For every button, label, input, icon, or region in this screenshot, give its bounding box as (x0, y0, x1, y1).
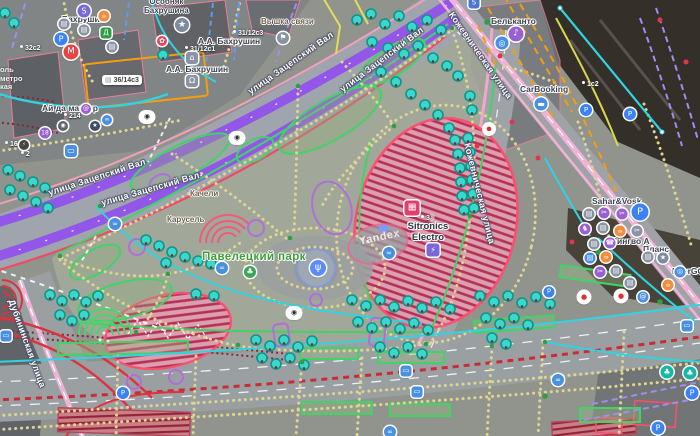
bell-icon[interactable]: Ω (186, 75, 198, 87)
briefcase-icon[interactable]: ▤ (584, 209, 595, 220)
briefcase-icon[interactable]: ▤ (598, 223, 609, 234)
camera-icon[interactable]: ◉ (58, 121, 68, 131)
bus-stop-icon[interactable]: ▭ (412, 387, 423, 398)
briefcase-icon[interactable]: ▤ (107, 42, 118, 53)
scissors-icon[interactable]: ✂ (595, 267, 606, 278)
parking-icon[interactable]: P (544, 287, 555, 298)
poi-icons-overlay: S ☕ ▤ ▤ Д P М ▤ ★ ✿ ⌂ Ω ⚑ ◉ ◉ ◉ ▭ 18 ◉ @… (0, 0, 700, 436)
bike-icon[interactable]: ∞ (552, 374, 564, 386)
stage-icon[interactable]: ▦ (405, 201, 420, 216)
park-tree-icon[interactable]: ♣ (661, 366, 674, 379)
target-icon[interactable]: ◎ (496, 37, 509, 50)
scissors-icon[interactable]: ✂ (617, 209, 628, 220)
charge-icon[interactable]: ⚡ (19, 140, 29, 150)
speed-camera-icon[interactable]: ● (578, 291, 590, 303)
bus-stop-icon[interactable]: ▭ (401, 366, 412, 377)
parking-icon[interactable]: P (55, 33, 68, 46)
briefcase-icon[interactable]: ▤ (59, 19, 70, 30)
ev-charge-icon[interactable]: ⚡ (427, 244, 440, 257)
park-tree-icon[interactable]: ♣ (684, 367, 697, 380)
rocking-horse-icon[interactable]: ♞ (580, 224, 591, 235)
briefcase-icon[interactable]: ▤ (625, 278, 636, 289)
briefcase-icon[interactable]: ▤ (643, 252, 654, 263)
bus-stop-icon[interactable]: ▭ (65, 145, 77, 157)
age-18-icon[interactable]: 18 (40, 128, 51, 139)
cafe-icon[interactable]: ☕ (99, 11, 110, 22)
bank-icon[interactable]: S (78, 5, 91, 18)
metro-icon[interactable]: М (64, 45, 79, 60)
speed-camera-icon[interactable]: ● (484, 124, 495, 135)
camera-icon[interactable]: ◉ (287, 308, 301, 319)
scissors-icon[interactable]: ✂ (632, 226, 643, 237)
briefcase-icon[interactable]: ▤ (585, 253, 596, 264)
parking-icon[interactable]: P (686, 387, 699, 400)
bike-icon[interactable]: ∞ (109, 218, 121, 230)
parking-icon[interactable]: P (117, 387, 129, 399)
cafe-icon[interactable]: ☕ (601, 252, 612, 263)
bike-icon[interactable]: ∞ (102, 115, 112, 125)
bus-stop-icon[interactable]: ▭ (1, 331, 12, 342)
at-icon[interactable]: @ (81, 104, 91, 114)
camera-icon[interactable]: ◉ (140, 112, 154, 123)
bus-stop-icon[interactable]: ▭ (682, 321, 693, 332)
car-icon[interactable]: ▬ (535, 98, 548, 111)
cafe-icon[interactable]: ☕ (663, 280, 674, 291)
fountain-icon[interactable]: ψ (310, 260, 326, 276)
star-icon[interactable]: ★ (658, 253, 669, 264)
bike-icon[interactable]: ∞ (384, 426, 396, 436)
bank-icon[interactable]: S (469, 0, 480, 9)
parking-icon[interactable]: P (580, 104, 592, 116)
bike-icon[interactable]: ∞ (383, 247, 395, 259)
music-icon[interactable]: ♪ (509, 27, 524, 42)
cafe-icon[interactable]: ☕ (615, 226, 626, 237)
briefcase-icon[interactable]: ▤ (589, 239, 600, 250)
briefcase-icon[interactable]: ▤ (79, 25, 90, 36)
parking-icon[interactable]: P (652, 422, 665, 435)
phone-icon[interactable]: ☎ (605, 238, 616, 249)
park-tree-icon[interactable]: ♣ (244, 266, 256, 278)
camera-icon[interactable]: ◉ (230, 133, 244, 144)
star-icon[interactable]: ★ (175, 18, 189, 32)
star-icon[interactable]: ★ (90, 121, 100, 131)
store-icon[interactable]: Д (101, 28, 112, 39)
flag-icon[interactable]: ⚑ (277, 32, 289, 44)
briefcase-icon[interactable]: ▤ (611, 266, 622, 277)
parking-icon[interactable]: P (632, 204, 649, 221)
museum-icon[interactable]: ⌂ (186, 52, 198, 64)
flower-icon[interactable]: ✿ (157, 36, 167, 46)
target-icon[interactable]: ◎ (675, 267, 686, 278)
scissors-icon[interactable]: ✂ (599, 208, 610, 219)
parking-icon[interactable]: P (624, 108, 636, 120)
bike-icon[interactable]: ∞ (216, 262, 228, 274)
at-icon[interactable]: @ (638, 292, 649, 303)
map-viewport[interactable]: улица Зацепский Вал улица Зацепский Вал … (0, 0, 700, 436)
speed-camera-icon[interactable]: ● (615, 290, 627, 302)
